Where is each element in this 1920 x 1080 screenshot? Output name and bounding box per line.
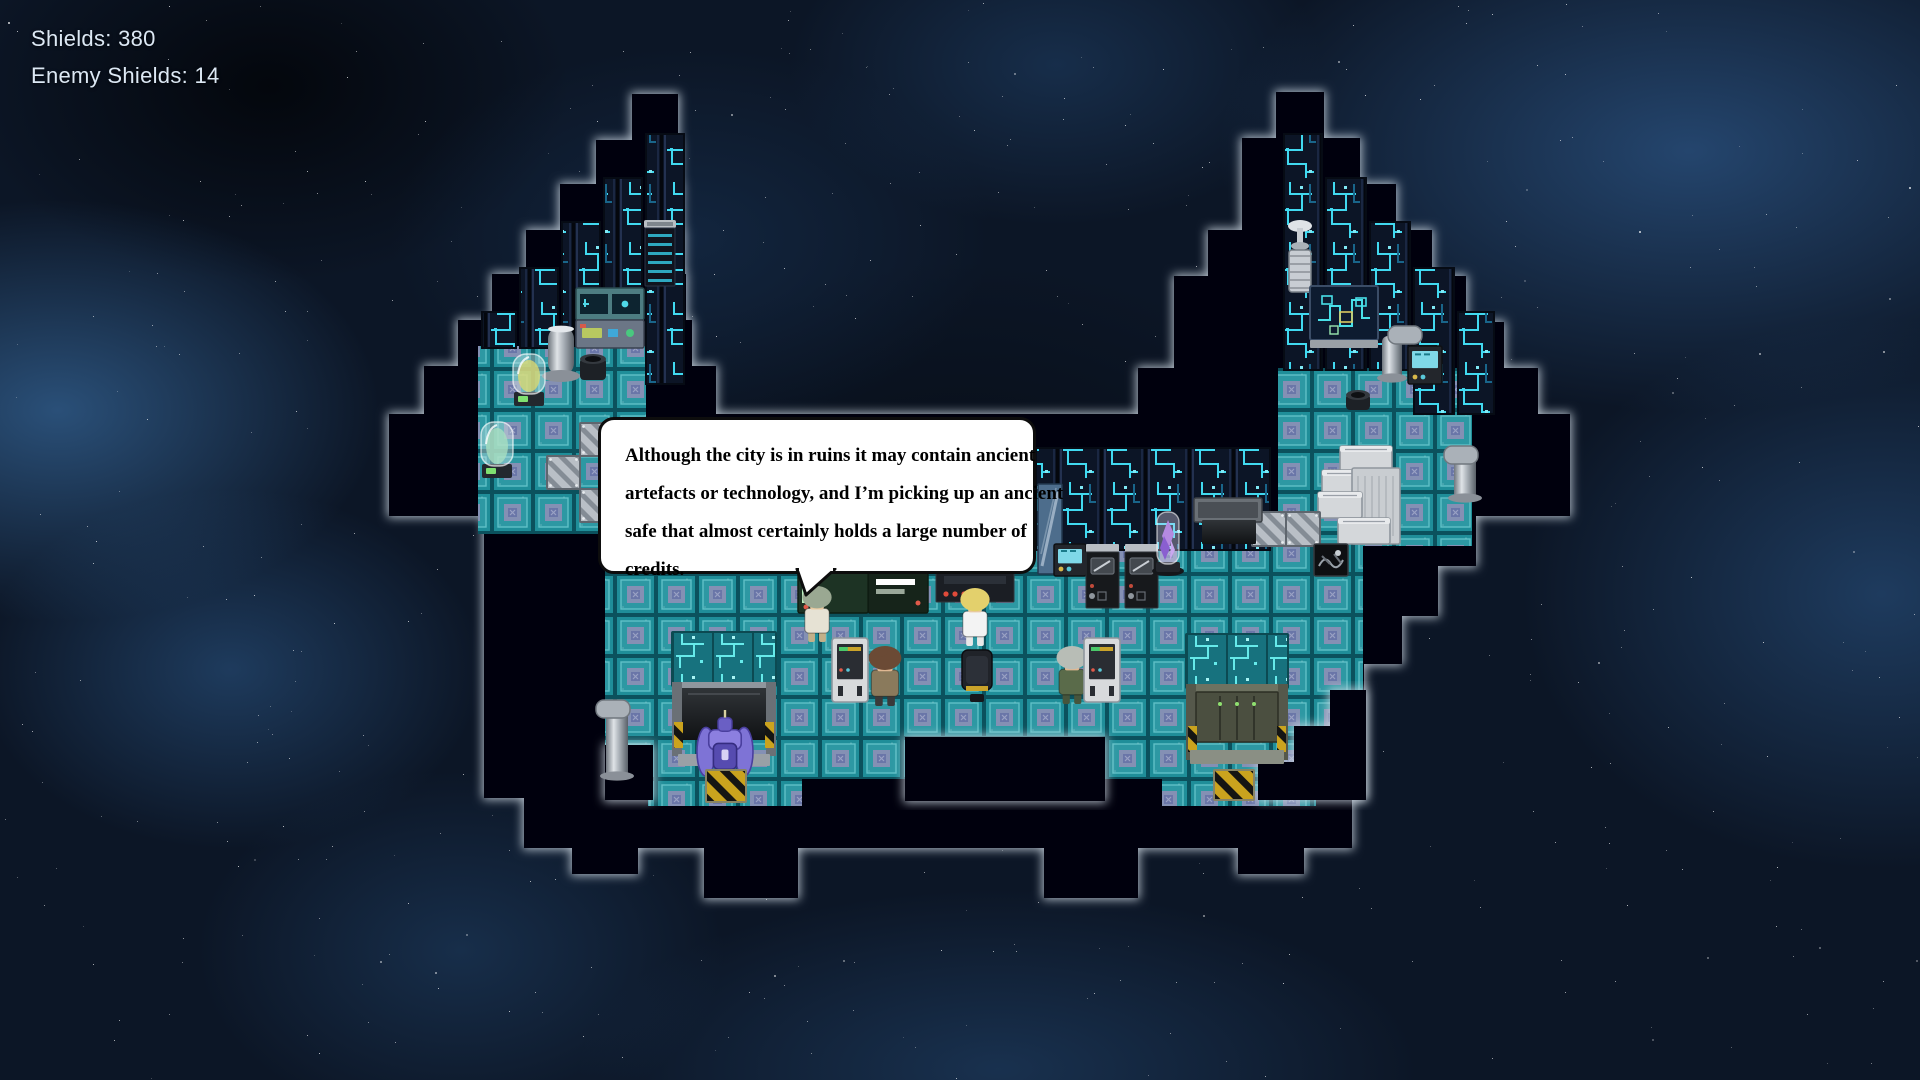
purple-crystal-capsule xyxy=(1152,512,1184,576)
cabinet-right xyxy=(1084,638,1120,702)
dialog-line: Although the city is in ruins it may con… xyxy=(625,437,1017,475)
hud: Shields: 380 Enemy Shields: 14 xyxy=(31,26,220,100)
game-screen: Shields: 380 Enemy Shields: 14 Although … xyxy=(0,0,1920,1080)
hazard-floor-left xyxy=(706,770,746,802)
yellow-stasis-capsule xyxy=(513,354,545,406)
door-lintel-right xyxy=(1194,498,1262,522)
hazard-floor-right xyxy=(1214,770,1254,800)
dialog-box[interactable]: Although the city is in ruins it may con… xyxy=(598,417,1036,574)
shields-counter: Shields: 380 xyxy=(31,26,220,52)
console-buttons xyxy=(576,320,644,348)
door-shaft-right xyxy=(1202,520,1256,544)
enemy-shields-counter: Enemy Shields: 14 xyxy=(31,63,220,89)
junk-safe-box xyxy=(1314,544,1348,576)
screen-device xyxy=(1054,544,1086,576)
cabinet-left xyxy=(832,638,868,702)
console-screens xyxy=(576,288,644,320)
dialog-tail xyxy=(793,568,839,598)
grate-tile-5 xyxy=(1286,512,1320,546)
machine-right-tower xyxy=(1408,346,1442,384)
city-circuit-display xyxy=(1310,286,1378,348)
dialog-line: safe that almost certainly holds a large… xyxy=(625,513,1017,551)
dialog-line: artefacts or technology, and I’m picking… xyxy=(625,475,1017,513)
pot-right-tower xyxy=(1346,390,1370,410)
grate-tile-2 xyxy=(547,456,580,489)
pot-left-tower xyxy=(580,354,606,380)
dialog-text: Although the city is in ruins it may con… xyxy=(601,420,1033,589)
green-stasis-capsule xyxy=(481,422,513,478)
server-rack xyxy=(644,220,676,286)
